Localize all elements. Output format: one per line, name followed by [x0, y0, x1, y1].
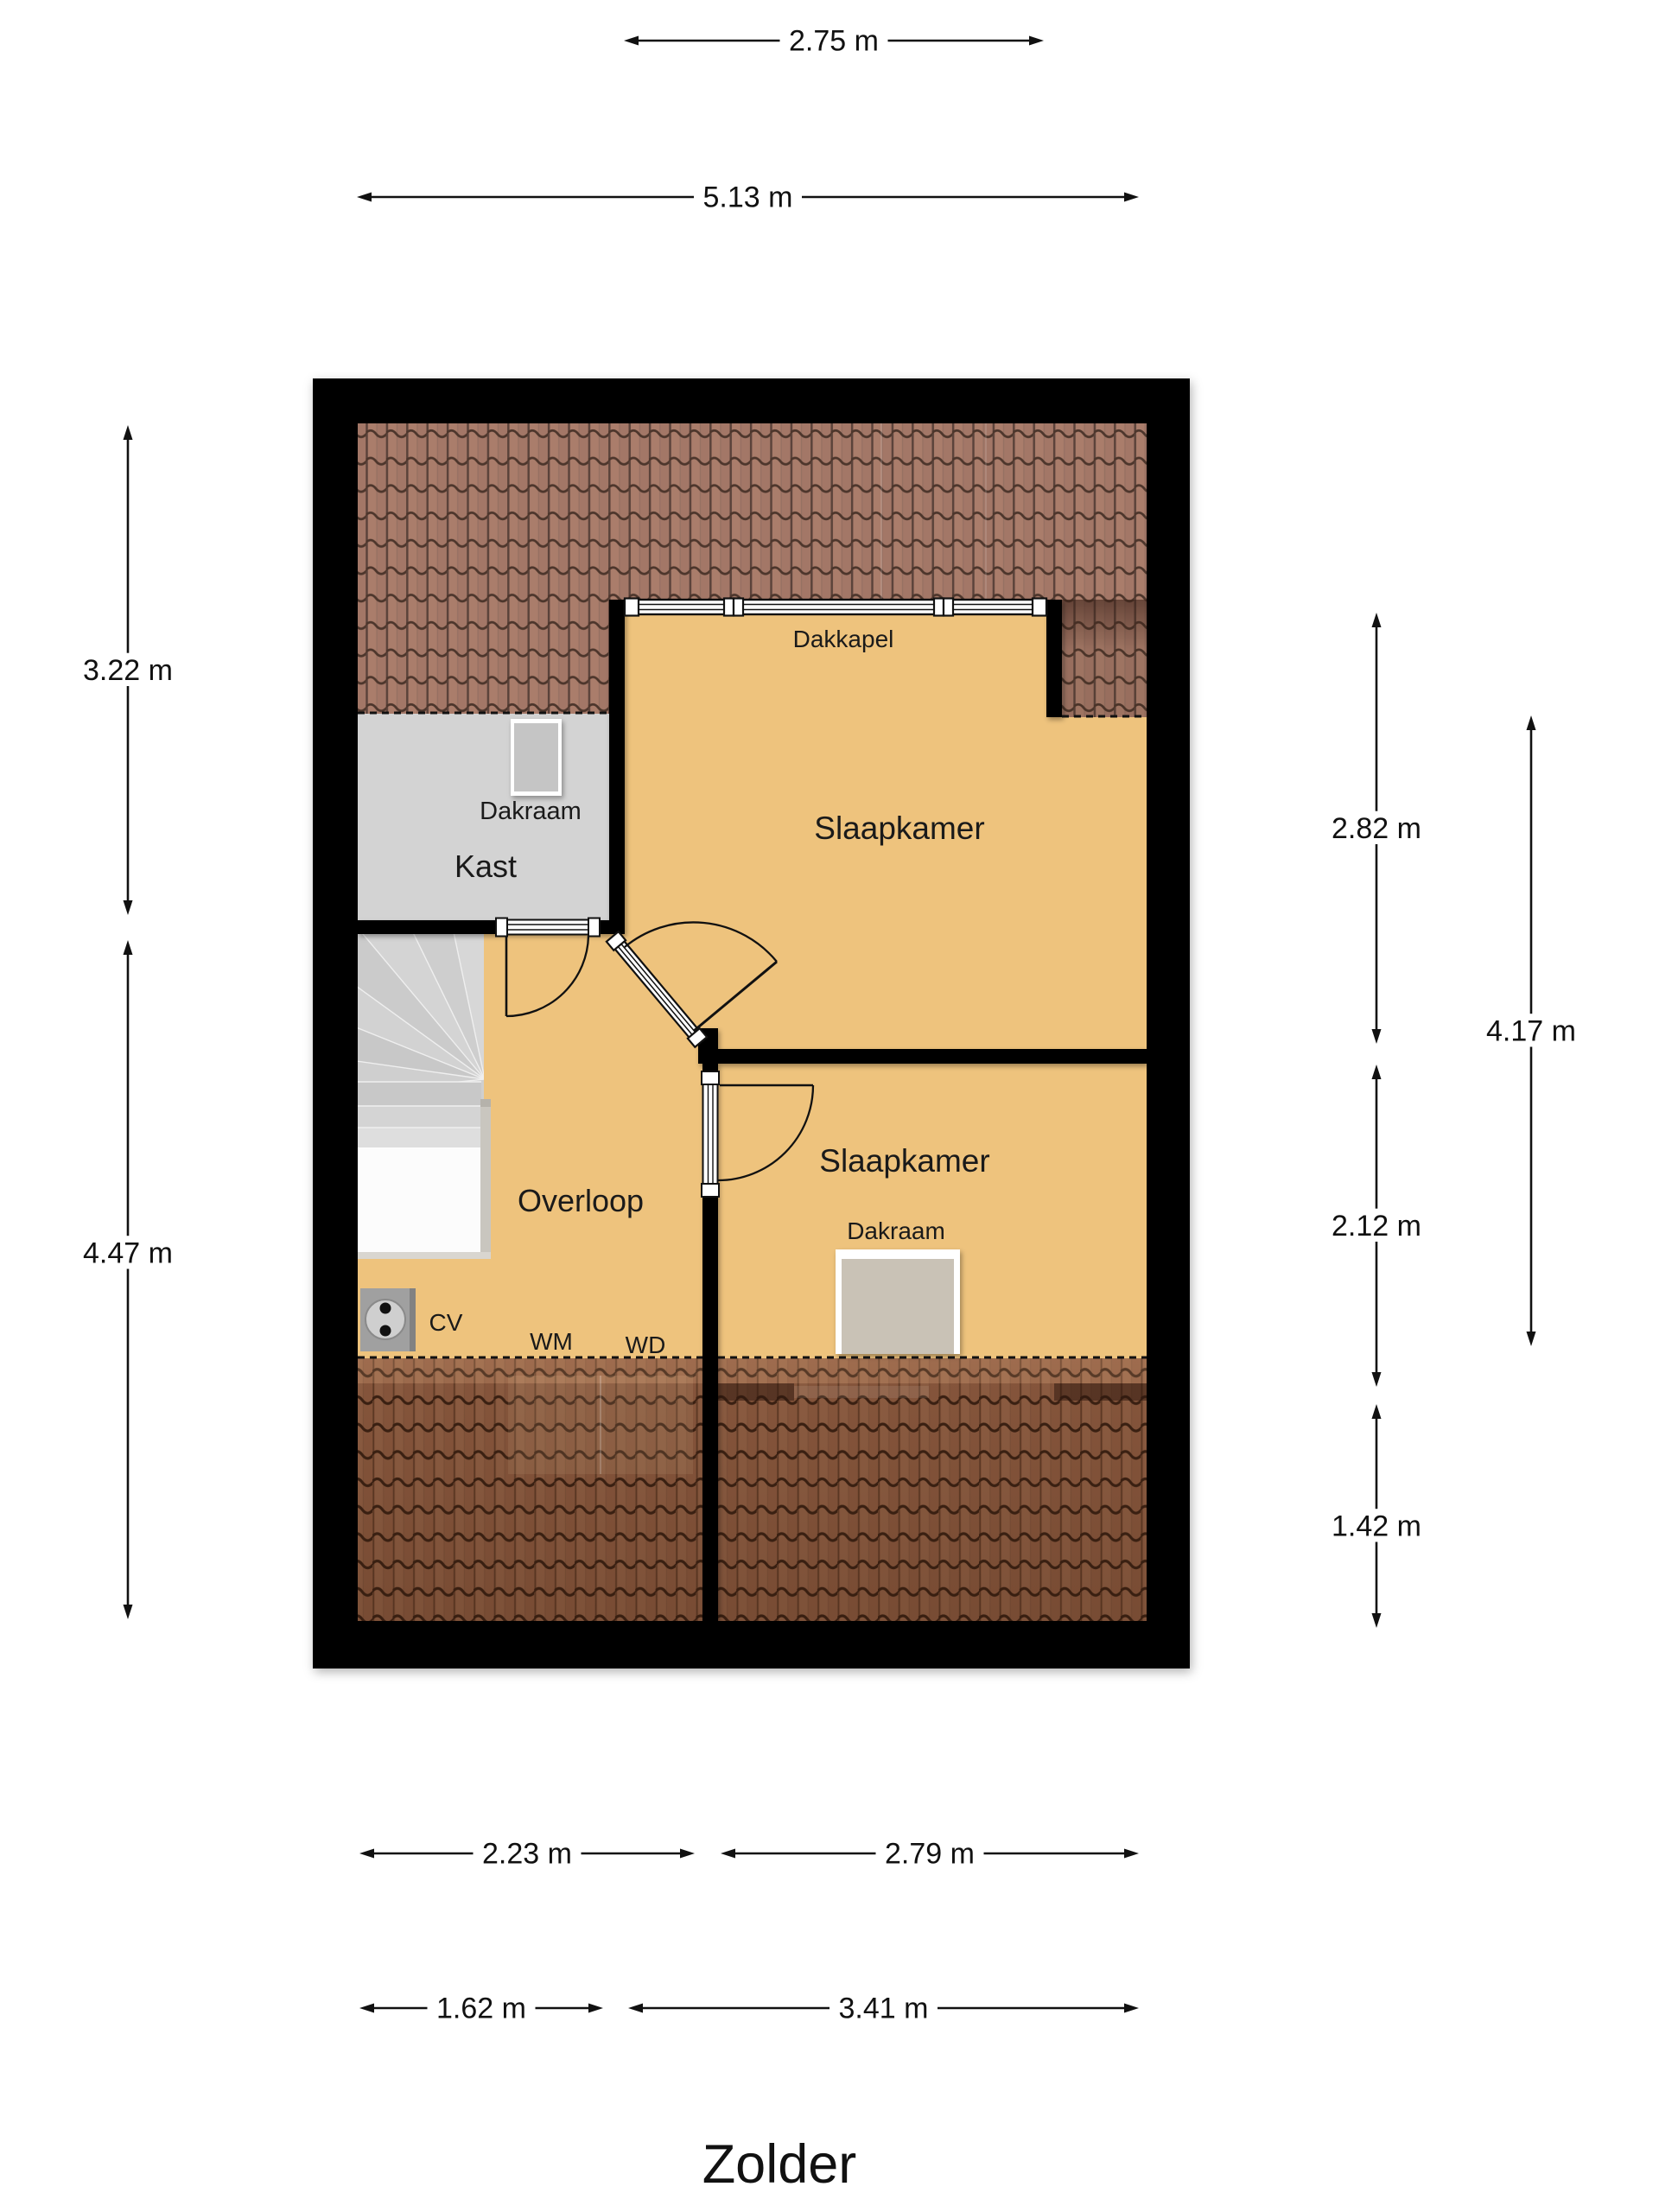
svg-text:Dakkapel: Dakkapel [793, 626, 894, 652]
svg-text:2.23 m: 2.23 m [482, 1837, 572, 1870]
svg-text:2.79 m: 2.79 m [885, 1837, 975, 1870]
svg-text:CV: CV [429, 1309, 463, 1336]
svg-text:Slaapkamer: Slaapkamer [814, 810, 984, 846]
svg-text:Zolder: Zolder [702, 2134, 857, 2195]
svg-text:4.47 m: 4.47 m [83, 1236, 173, 1269]
svg-text:1.42 m: 1.42 m [1332, 1510, 1421, 1542]
svg-text:1.62 m: 1.62 m [436, 1992, 526, 2024]
svg-text:Dakraam: Dakraam [847, 1217, 945, 1244]
svg-text:2.75 m: 2.75 m [789, 24, 879, 57]
svg-text:5.13 m: 5.13 m [703, 181, 793, 213]
svg-text:Kast: Kast [454, 849, 517, 884]
svg-text:Dakraam: Dakraam [480, 798, 582, 825]
svg-text:Overloop: Overloop [518, 1183, 644, 1218]
svg-text:WM: WM [530, 1328, 573, 1355]
svg-text:Slaapkamer: Slaapkamer [819, 1143, 989, 1179]
svg-text:3.41 m: 3.41 m [839, 1992, 929, 2024]
svg-text:2.82 m: 2.82 m [1332, 812, 1421, 845]
svg-text:2.12 m: 2.12 m [1332, 1210, 1421, 1243]
svg-text:3.22 m: 3.22 m [83, 654, 173, 687]
svg-text:WD: WD [626, 1332, 666, 1358]
svg-text:4.17 m: 4.17 m [1486, 1014, 1576, 1047]
